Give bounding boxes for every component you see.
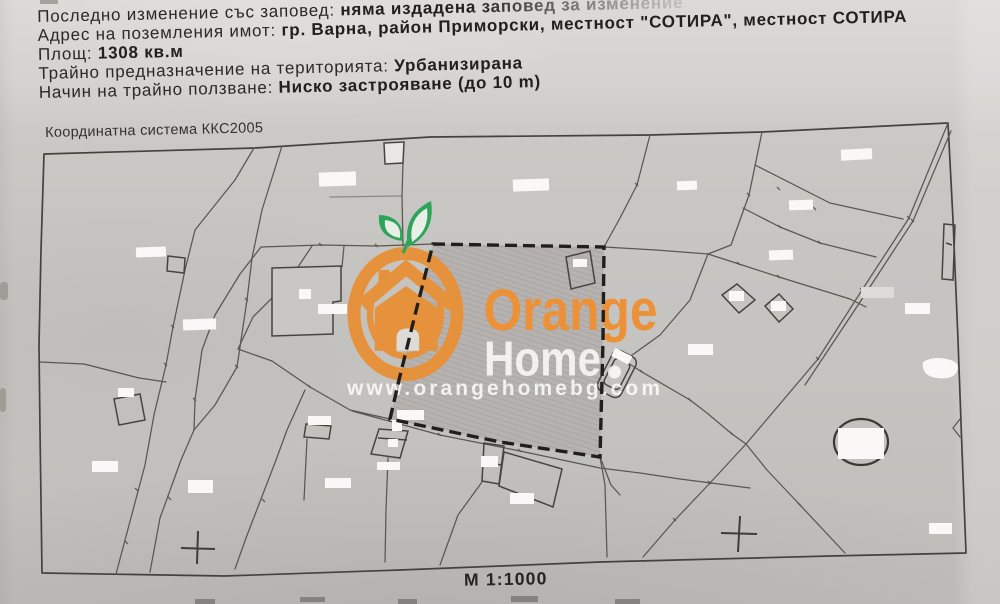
svg-text:www.orangehomebg.com: www.orangehomebg.com (346, 377, 660, 400)
